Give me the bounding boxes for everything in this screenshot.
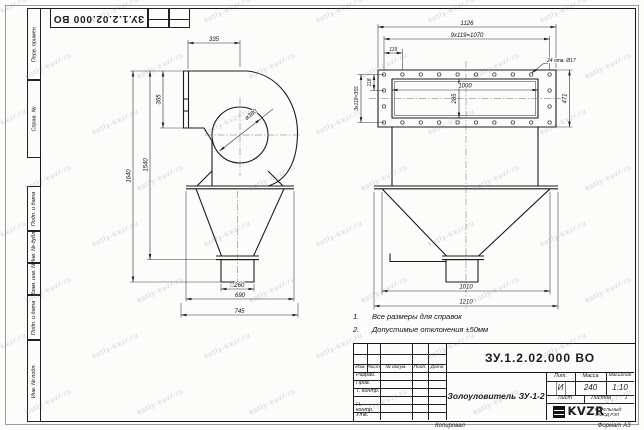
bolt-hole (401, 121, 404, 124)
bolt-hole (548, 89, 551, 92)
logo-stripe (554, 410, 564, 411)
grid-line (354, 354, 446, 355)
bolt-hole (419, 73, 422, 76)
bolt-hole (493, 73, 496, 76)
dim-label-119: 119 (389, 47, 397, 53)
note-text: Допустимые отклонения ±50мм (372, 325, 488, 334)
title-block-doc-number: ЗУ.1.2.02.000 ВО (446, 344, 634, 372)
footer-format: Формат А3 (588, 423, 640, 429)
title-block: ЗУ.1.2.02.000 ВО Золоуловитель ЗУ-1-2 Из… (353, 343, 636, 422)
col-header-docnum: № докум. (380, 364, 412, 372)
dim-label-pitch: 9x119=1070 (451, 33, 484, 39)
dim-label-col-pitch: 3x118=355 (354, 86, 360, 111)
row-label-utv: Утв. (354, 412, 380, 420)
company-name-line2: ЗАВОД РЭП (595, 412, 635, 417)
row-label-prov: Пров. (354, 380, 380, 388)
bolt-hole (474, 121, 477, 124)
dim-label-1000: 1000 (458, 84, 472, 90)
row-label-razrab: Разраб. (354, 372, 380, 380)
col-header-list: Лист (367, 364, 380, 372)
footer-copied-by: Копировал (415, 423, 485, 429)
bolt-hole (548, 105, 551, 108)
kvzr-logo-icon (553, 406, 565, 418)
dim-label-sq260: □260 (231, 283, 245, 289)
sheets-value: 1 (618, 395, 634, 403)
company-name: КОТЕЛЬНЫЙ ЗАВОД РЭП (595, 407, 635, 418)
bolt-hole (530, 73, 533, 76)
logo-stripe (554, 414, 564, 415)
product-name: Золоуловитель ЗУ-1-2 (446, 372, 546, 420)
lit-header: Лит. (546, 372, 575, 381)
dim-label-471: 471 (563, 93, 569, 103)
bolt-hole (438, 73, 441, 76)
bolt-hole (530, 121, 533, 124)
note-text: Все размеры для справок (372, 312, 462, 321)
bolt-hole (419, 121, 422, 124)
note-number: 1. (353, 312, 359, 321)
col-header-data: Дата (428, 364, 446, 372)
holes-note-label: 24 отв. Ø17 (546, 58, 576, 64)
note-number: 2. (353, 325, 359, 334)
bolt-hole (511, 121, 514, 124)
bolt-hole (401, 73, 404, 76)
grid-line (380, 344, 381, 420)
side-view: 1126 9x119=1070 119 24 отв. Ø17 1000 285… (354, 21, 576, 310)
sheets-header: Листов (584, 395, 618, 403)
dim-label-118: 118 (367, 78, 373, 86)
dim-label-dia380: ø380 (244, 108, 259, 122)
grid-line (412, 344, 413, 420)
mass-value: 240 (575, 381, 606, 395)
grid-line (428, 344, 429, 420)
bolt-hole (474, 73, 477, 76)
dim-label-1126: 1126 (461, 21, 475, 27)
mass-header: Масса (575, 372, 606, 381)
row-label-nkontr: Н. контр. (354, 404, 380, 412)
bolt-hole (548, 121, 551, 124)
lit-value: И (546, 381, 575, 395)
bolt-hole (548, 73, 551, 76)
scale-value: 1:10 (606, 381, 634, 395)
drawing-sheet: Перв. примен. Справ. № Подп. и дата Инв.… (0, 0, 644, 430)
dim-label-1540: 1540 (144, 158, 150, 172)
gate-handle (390, 254, 446, 262)
bolt-hole (456, 73, 459, 76)
dim-label-690: 690 (235, 293, 246, 299)
row-label-tkontr: Т. контр. (354, 388, 380, 396)
bolt-hole (493, 121, 496, 124)
dim-label-745: 745 (234, 309, 245, 315)
col-header-podp: Подп. (412, 364, 428, 372)
bolt-hole (456, 121, 459, 124)
col-header-izm: Изм. (354, 364, 367, 372)
dim-label-1640: 1640 (127, 169, 133, 183)
sheet-header: Лист (546, 395, 584, 403)
dim-label-365: 365 (157, 94, 163, 105)
scale-header: Масштаб (606, 372, 634, 381)
dim-label-1210: 1210 (459, 300, 473, 306)
bolt-hole (382, 105, 385, 108)
front-view: ø380 1640 1540 365 335 □260 690 745 (127, 37, 302, 318)
bolt-hole (511, 73, 514, 76)
bolt-hole (438, 121, 441, 124)
dim-label-1010: 1010 (459, 285, 473, 291)
dim-label-335: 335 (209, 37, 220, 43)
dim-label-285: 285 (452, 93, 458, 105)
